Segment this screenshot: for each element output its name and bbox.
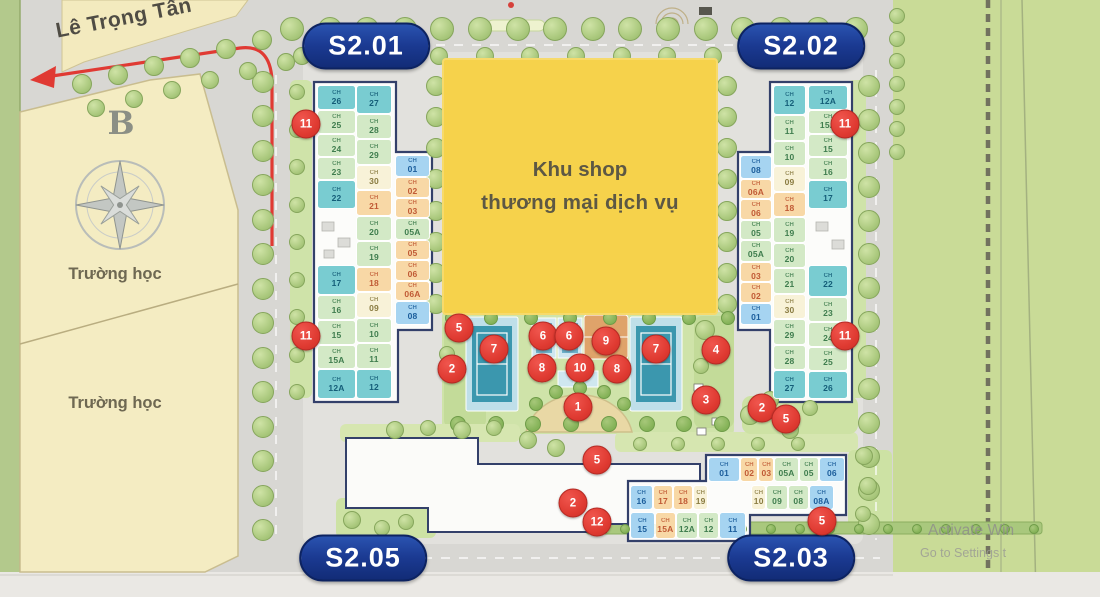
unit-08: CH08 xyxy=(789,486,808,509)
bottom-strip xyxy=(0,572,1100,597)
s201-col-mid: CH27CH28CH29CH30CH21CH20CH19CH18CH09CH10… xyxy=(357,86,391,398)
unit-17: CH17 xyxy=(318,266,355,294)
unit-24: CH24 xyxy=(318,135,355,156)
unit-18: CH18 xyxy=(774,193,805,216)
unit-18: CH18 xyxy=(357,268,391,291)
building-label-s203: S2.03 xyxy=(727,535,855,582)
unit-23: CH23 xyxy=(809,298,847,321)
unit-15: CH15 xyxy=(318,321,355,344)
unit-12A: CH12A xyxy=(318,370,355,398)
s203-row-bottom: CH15CH15ACH12ACH12CH11 xyxy=(631,513,745,538)
unit-18: CH18 xyxy=(674,486,692,509)
unit-19: CH19 xyxy=(357,242,391,265)
unit-30: CH30 xyxy=(774,295,805,318)
unit-15A: CH15A xyxy=(656,513,676,538)
unit-22: CH22 xyxy=(318,181,355,208)
school-parcel xyxy=(20,74,238,572)
unit-28: CH28 xyxy=(774,346,805,369)
unit-02: CH02 xyxy=(741,458,757,481)
s203-row-top: CH01CH02CH03CH05ACH05CH06 xyxy=(709,458,844,481)
unit-08A: CH08A xyxy=(810,486,833,509)
s202-col-right-bottom: CH22CH23CH24CH25CH26 xyxy=(809,266,847,398)
unit-29: CH29 xyxy=(357,140,391,163)
unit-12A: CH12A xyxy=(677,513,697,538)
compass-letter: B xyxy=(98,104,144,142)
unit-19: CH19 xyxy=(694,486,707,509)
s203-row-mid-right: CH10CH09CH08CH08A xyxy=(752,486,833,509)
unit-27: CH27 xyxy=(357,86,391,113)
unit-21: CH21 xyxy=(774,269,805,292)
unit-12A: CH12A xyxy=(809,86,847,109)
unit-06: CH06 xyxy=(741,200,771,218)
site-plan: CH26CH25CH24CH23CH22 CH17CH16CH15CH15ACH… xyxy=(0,0,1100,597)
s202-col-mid: CH12CH11CH10CH09CH18CH19CH20CH21CH30CH29… xyxy=(774,86,805,398)
unit-10: CH10 xyxy=(357,319,391,342)
unit-16: CH16 xyxy=(809,158,847,179)
unit-20: CH20 xyxy=(774,244,805,267)
garden-patch xyxy=(615,432,858,452)
basketball-court xyxy=(584,315,628,359)
building-label-s201: S2.01 xyxy=(302,23,430,70)
unit-02: CH02 xyxy=(741,283,771,301)
unit-27: CH27 xyxy=(774,371,805,398)
traffic-island xyxy=(487,20,545,31)
unit-17: CH17 xyxy=(654,486,672,509)
unit-06A: CH06A xyxy=(741,180,771,198)
greenbelt-left xyxy=(0,0,20,597)
unit-11: CH11 xyxy=(357,344,391,367)
hedge-left-of-s201 xyxy=(290,80,312,398)
school-label-2: Trường học xyxy=(55,394,175,413)
unit-12: CH12 xyxy=(699,513,719,538)
school-label-1: Trường học xyxy=(55,265,175,284)
building-label-s202: S2.02 xyxy=(737,23,865,70)
unit-06A: CH06A xyxy=(396,282,429,300)
unit-10: CH10 xyxy=(752,486,765,509)
shop-area-line2: thương mại dịch vụ xyxy=(481,187,679,220)
small-court-2 xyxy=(558,318,582,358)
s202-col-right-top: CH12ACH15ACH15CH16CH17 xyxy=(809,86,847,208)
unit-01: CH01 xyxy=(396,156,429,176)
unit-02: CH02 xyxy=(396,178,429,196)
unit-20: CH20 xyxy=(357,217,391,240)
unit-09: CH09 xyxy=(774,167,805,190)
utility-box xyxy=(699,7,712,15)
unit-05: CH05 xyxy=(396,241,429,259)
unit-30: CH30 xyxy=(357,166,391,189)
unit-11: CH11 xyxy=(720,513,745,538)
unit-10: CH10 xyxy=(774,142,805,165)
unit-26: CH26 xyxy=(318,86,355,109)
unit-05A: CH05A xyxy=(775,458,797,481)
unit-17: CH17 xyxy=(809,181,847,208)
unit-29: CH29 xyxy=(774,320,805,343)
compass-rose xyxy=(76,161,164,249)
unit-15A: CH15A xyxy=(809,111,847,132)
small-court-1 xyxy=(532,318,556,358)
unit-19: CH19 xyxy=(774,218,805,241)
unit-28: CH28 xyxy=(357,115,391,138)
unit-05A: CH05A xyxy=(741,241,771,261)
small-red-dot xyxy=(508,2,514,8)
unit-05: CH05 xyxy=(741,221,771,239)
unit-08: CH08 xyxy=(741,156,771,178)
unit-16: CH16 xyxy=(318,296,355,319)
unit-09: CH09 xyxy=(357,293,391,316)
unit-21: CH21 xyxy=(357,191,391,214)
tennis-court-right xyxy=(630,317,682,411)
unit-16: CH16 xyxy=(631,486,652,509)
unit-01: CH01 xyxy=(709,458,739,481)
unit-26: CH26 xyxy=(809,372,847,398)
shop-area-block: Khu shop thương mại dịch vụ xyxy=(442,58,718,315)
unit-05A: CH05A xyxy=(396,219,429,239)
tennis-court-left xyxy=(466,317,518,411)
greenbelt-right xyxy=(893,0,1100,597)
unit-24: CH24 xyxy=(809,323,847,346)
shop-area-line1: Khu shop xyxy=(533,154,628,187)
unit-09: CH09 xyxy=(767,486,786,509)
s201-col-left-top: CH26CH25CH24CH23CH22 xyxy=(318,86,355,208)
unit-06: CH06 xyxy=(820,458,844,481)
building-label-s205: S2.05 xyxy=(299,535,427,582)
s202-col-left: CH08CH06ACH06CH05CH05ACH03CH02CH01 xyxy=(741,156,771,324)
unit-15A: CH15A xyxy=(318,346,355,369)
s201-col-left-bottom: CH17CH16CH15CH15ACH12A xyxy=(318,266,355,398)
unit-25: CH25 xyxy=(809,348,847,371)
unit-03: CH03 xyxy=(396,199,429,217)
unit-12: CH12 xyxy=(774,86,805,114)
garden-pocket-right xyxy=(694,316,734,428)
unit-12: CH12 xyxy=(357,370,391,398)
s201-col-right: CH01CH02CH03CH05ACH05CH06CH06ACH08 xyxy=(396,156,429,324)
unit-03: CH03 xyxy=(741,263,771,281)
unit-06: CH06 xyxy=(396,261,429,279)
unit-22: CH22 xyxy=(809,266,847,296)
unit-15: CH15 xyxy=(809,135,847,156)
unit-03: CH03 xyxy=(759,458,773,481)
unit-01: CH01 xyxy=(741,304,771,324)
s203-row-mid-left: CH16CH17CH18CH19 xyxy=(631,486,707,509)
unit-25: CH25 xyxy=(318,111,355,132)
unit-08: CH08 xyxy=(396,302,429,324)
unit-15: CH15 xyxy=(631,513,654,538)
unit-11: CH11 xyxy=(774,116,805,139)
unit-23: CH23 xyxy=(318,158,355,179)
garden-patch xyxy=(848,450,892,534)
unit-05: CH05 xyxy=(800,458,818,481)
